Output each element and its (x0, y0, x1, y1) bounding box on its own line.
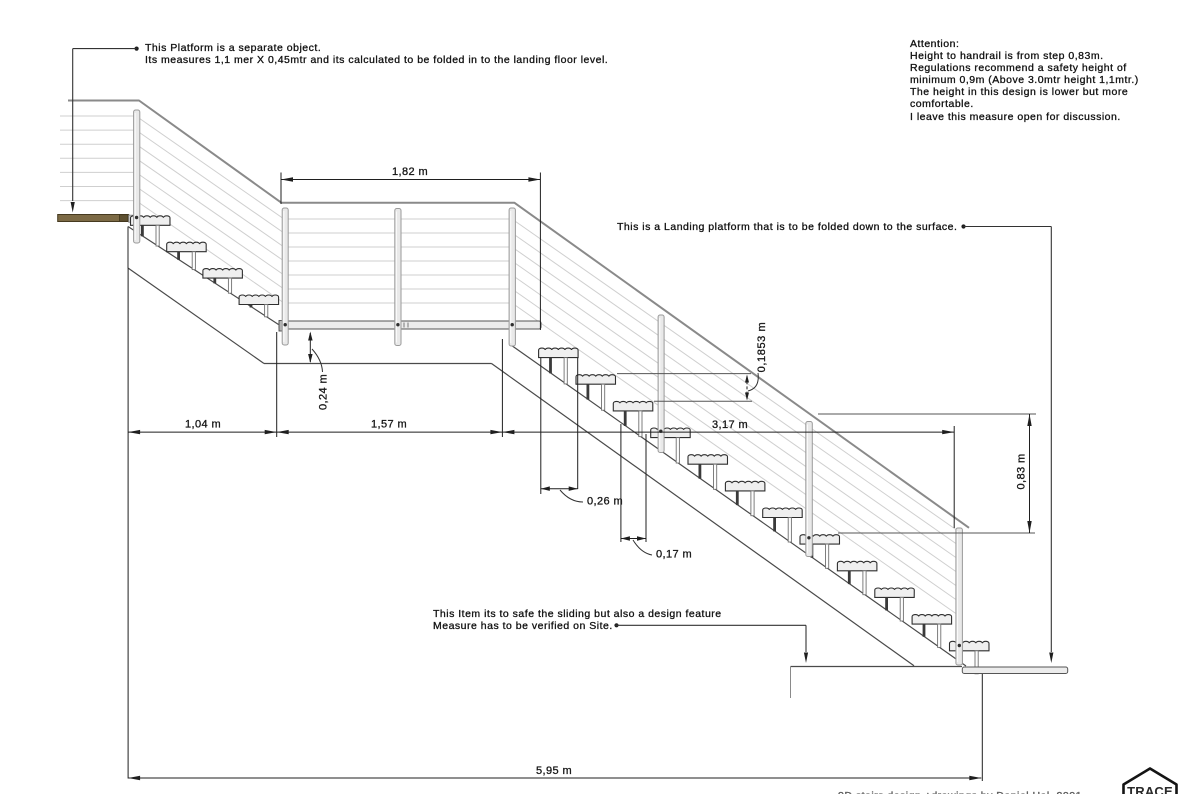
svg-text:3,17 m: 3,17 m (712, 419, 748, 431)
svg-text:TRACE: TRACE (1127, 784, 1173, 794)
svg-text:0,17 m: 0,17 m (656, 549, 692, 561)
svg-text:1,04 m: 1,04 m (185, 419, 221, 431)
svg-text:1,82 m: 1,82 m (392, 166, 428, 178)
svg-text:0,24 m: 0,24 m (318, 374, 330, 410)
svg-text:0,1853 m: 0,1853 m (756, 322, 768, 373)
svg-text:5,95 m: 5,95 m (536, 765, 572, 777)
svg-text:1,57 m: 1,57 m (371, 419, 407, 431)
svg-text:0,83 m: 0,83 m (1016, 453, 1028, 489)
svg-text:0,26 m: 0,26 m (587, 496, 623, 508)
